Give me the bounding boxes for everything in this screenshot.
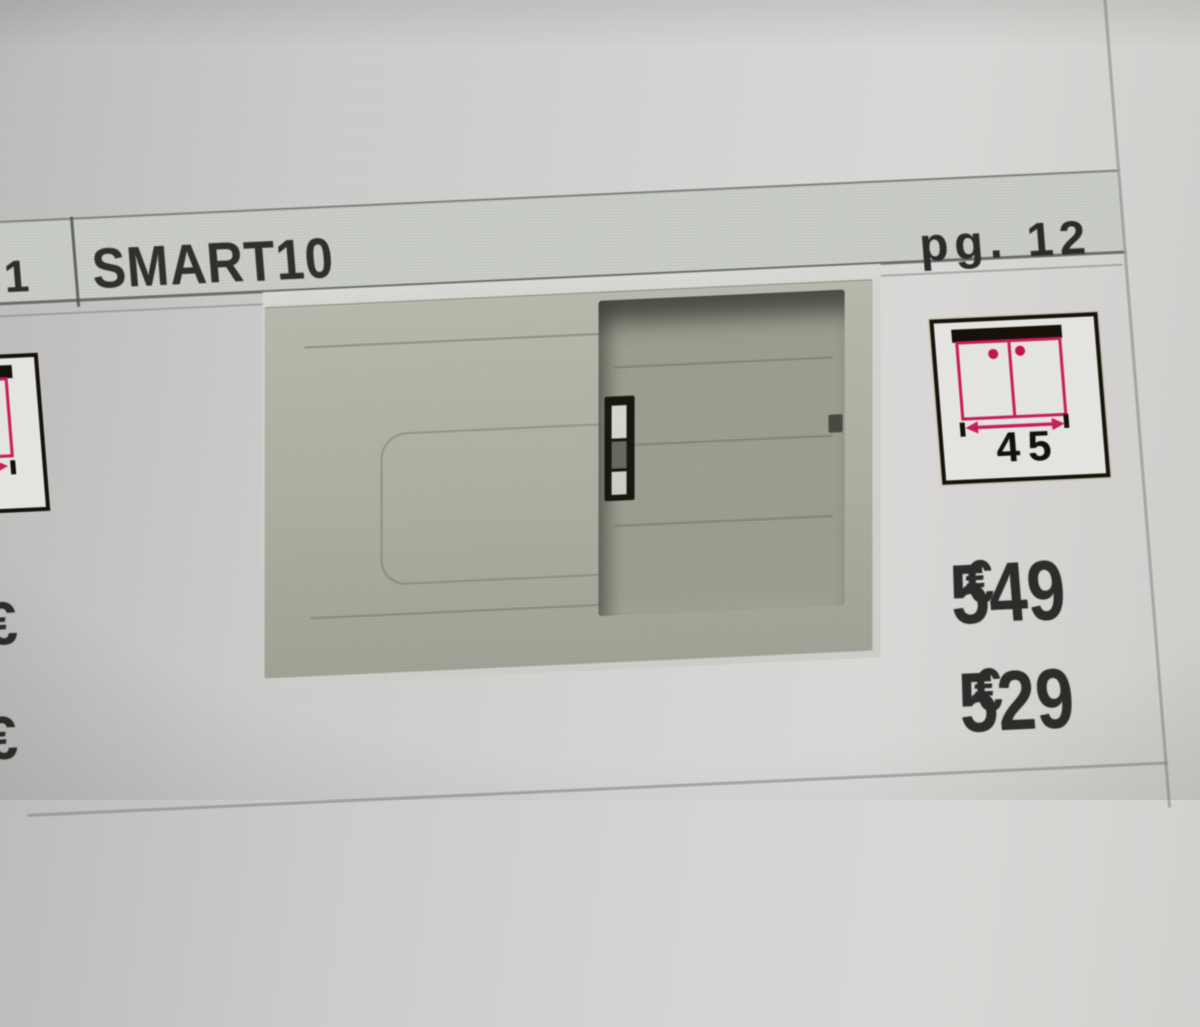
- drain-fitting-detail: [612, 441, 627, 469]
- bowl-texture-line: [615, 515, 833, 527]
- bowl-texture-line: [615, 435, 833, 447]
- cabinet-doors: [0, 377, 14, 462]
- catalog-page: 1 SMART10 pg. 12: [0, 0, 1200, 1021]
- drainboard-groove: [305, 333, 605, 349]
- product-photo: [262, 264, 880, 686]
- column-rule: [1103, 0, 1171, 808]
- currency-symbol: €: [963, 551, 995, 613]
- page-reference: pg. 12: [918, 213, 1094, 268]
- overflow-hole: [829, 414, 843, 433]
- width-arrow-icon: [0, 459, 9, 479]
- arrow-end-tick: [10, 460, 16, 474]
- next-row-top-line: [27, 761, 1167, 816]
- currency-symbol: €: [972, 659, 1004, 721]
- drain-fitting-detail: [612, 405, 627, 439]
- sink-image: [264, 279, 872, 678]
- sink-bowl: [598, 290, 844, 616]
- row-number: 1: [0, 255, 34, 300]
- drainboard-tray-outline: [381, 423, 611, 586]
- cabinet-doors: [955, 337, 1067, 421]
- bowl-texture-line: [615, 356, 833, 368]
- cabinet-width-icon: 45: [929, 312, 1110, 485]
- sink-drain-fitting: [605, 396, 635, 502]
- partial-euro-top: €: [0, 594, 20, 658]
- width-value: 45: [942, 422, 1105, 471]
- partial-cabinet-icon: [0, 353, 50, 519]
- product-name: SMART10: [90, 230, 336, 297]
- drain-fitting-detail: [612, 471, 627, 495]
- header-cell-divider: [70, 217, 80, 307]
- partial-euro-bottom: €: [0, 708, 20, 772]
- drainboard-groove: [310, 603, 616, 619]
